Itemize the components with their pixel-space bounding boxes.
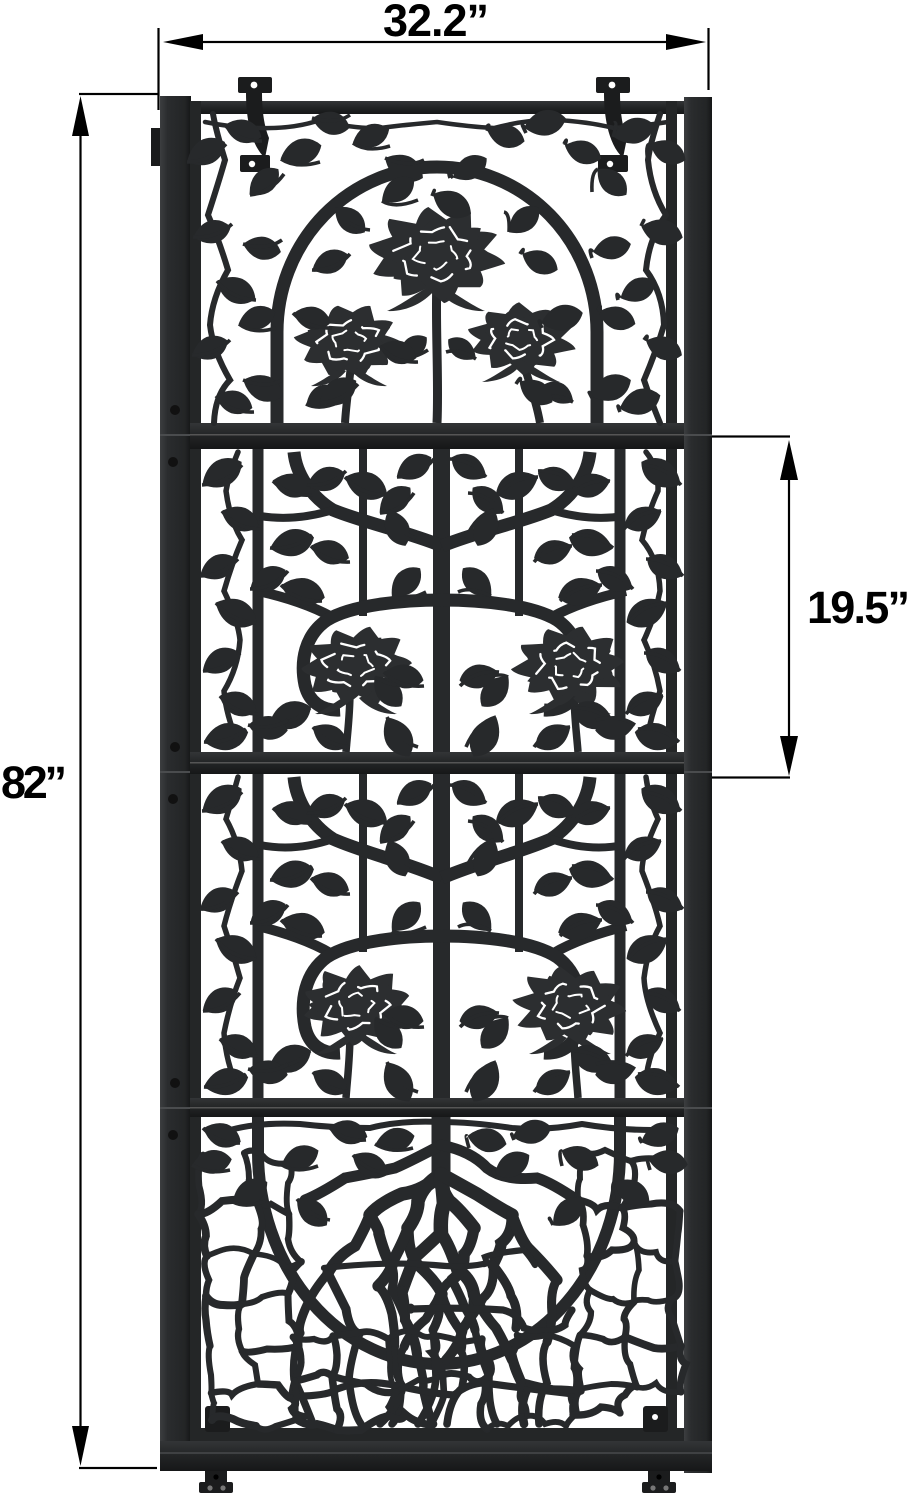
svg-text:19.5”: 19.5” (807, 582, 910, 633)
svg-text:32.2”: 32.2” (383, 0, 489, 46)
svg-text:82”: 82” (1, 757, 67, 808)
